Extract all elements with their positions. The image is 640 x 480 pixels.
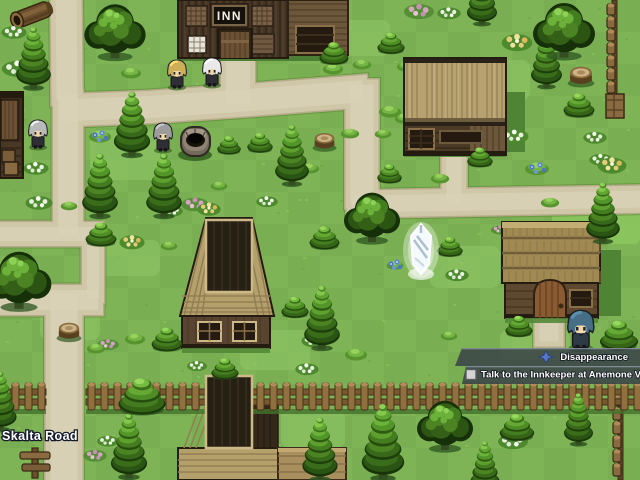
svg-text:Talk to the Innkeeper at Anemo: Talk to the Innkeeper at Anemone V (481, 370, 640, 381)
svg-text:Skalta Road: Skalta Road (2, 429, 78, 443)
svg-text:Disappearance: Disappearance (560, 352, 628, 363)
svg-text:INN: INN (217, 9, 242, 23)
